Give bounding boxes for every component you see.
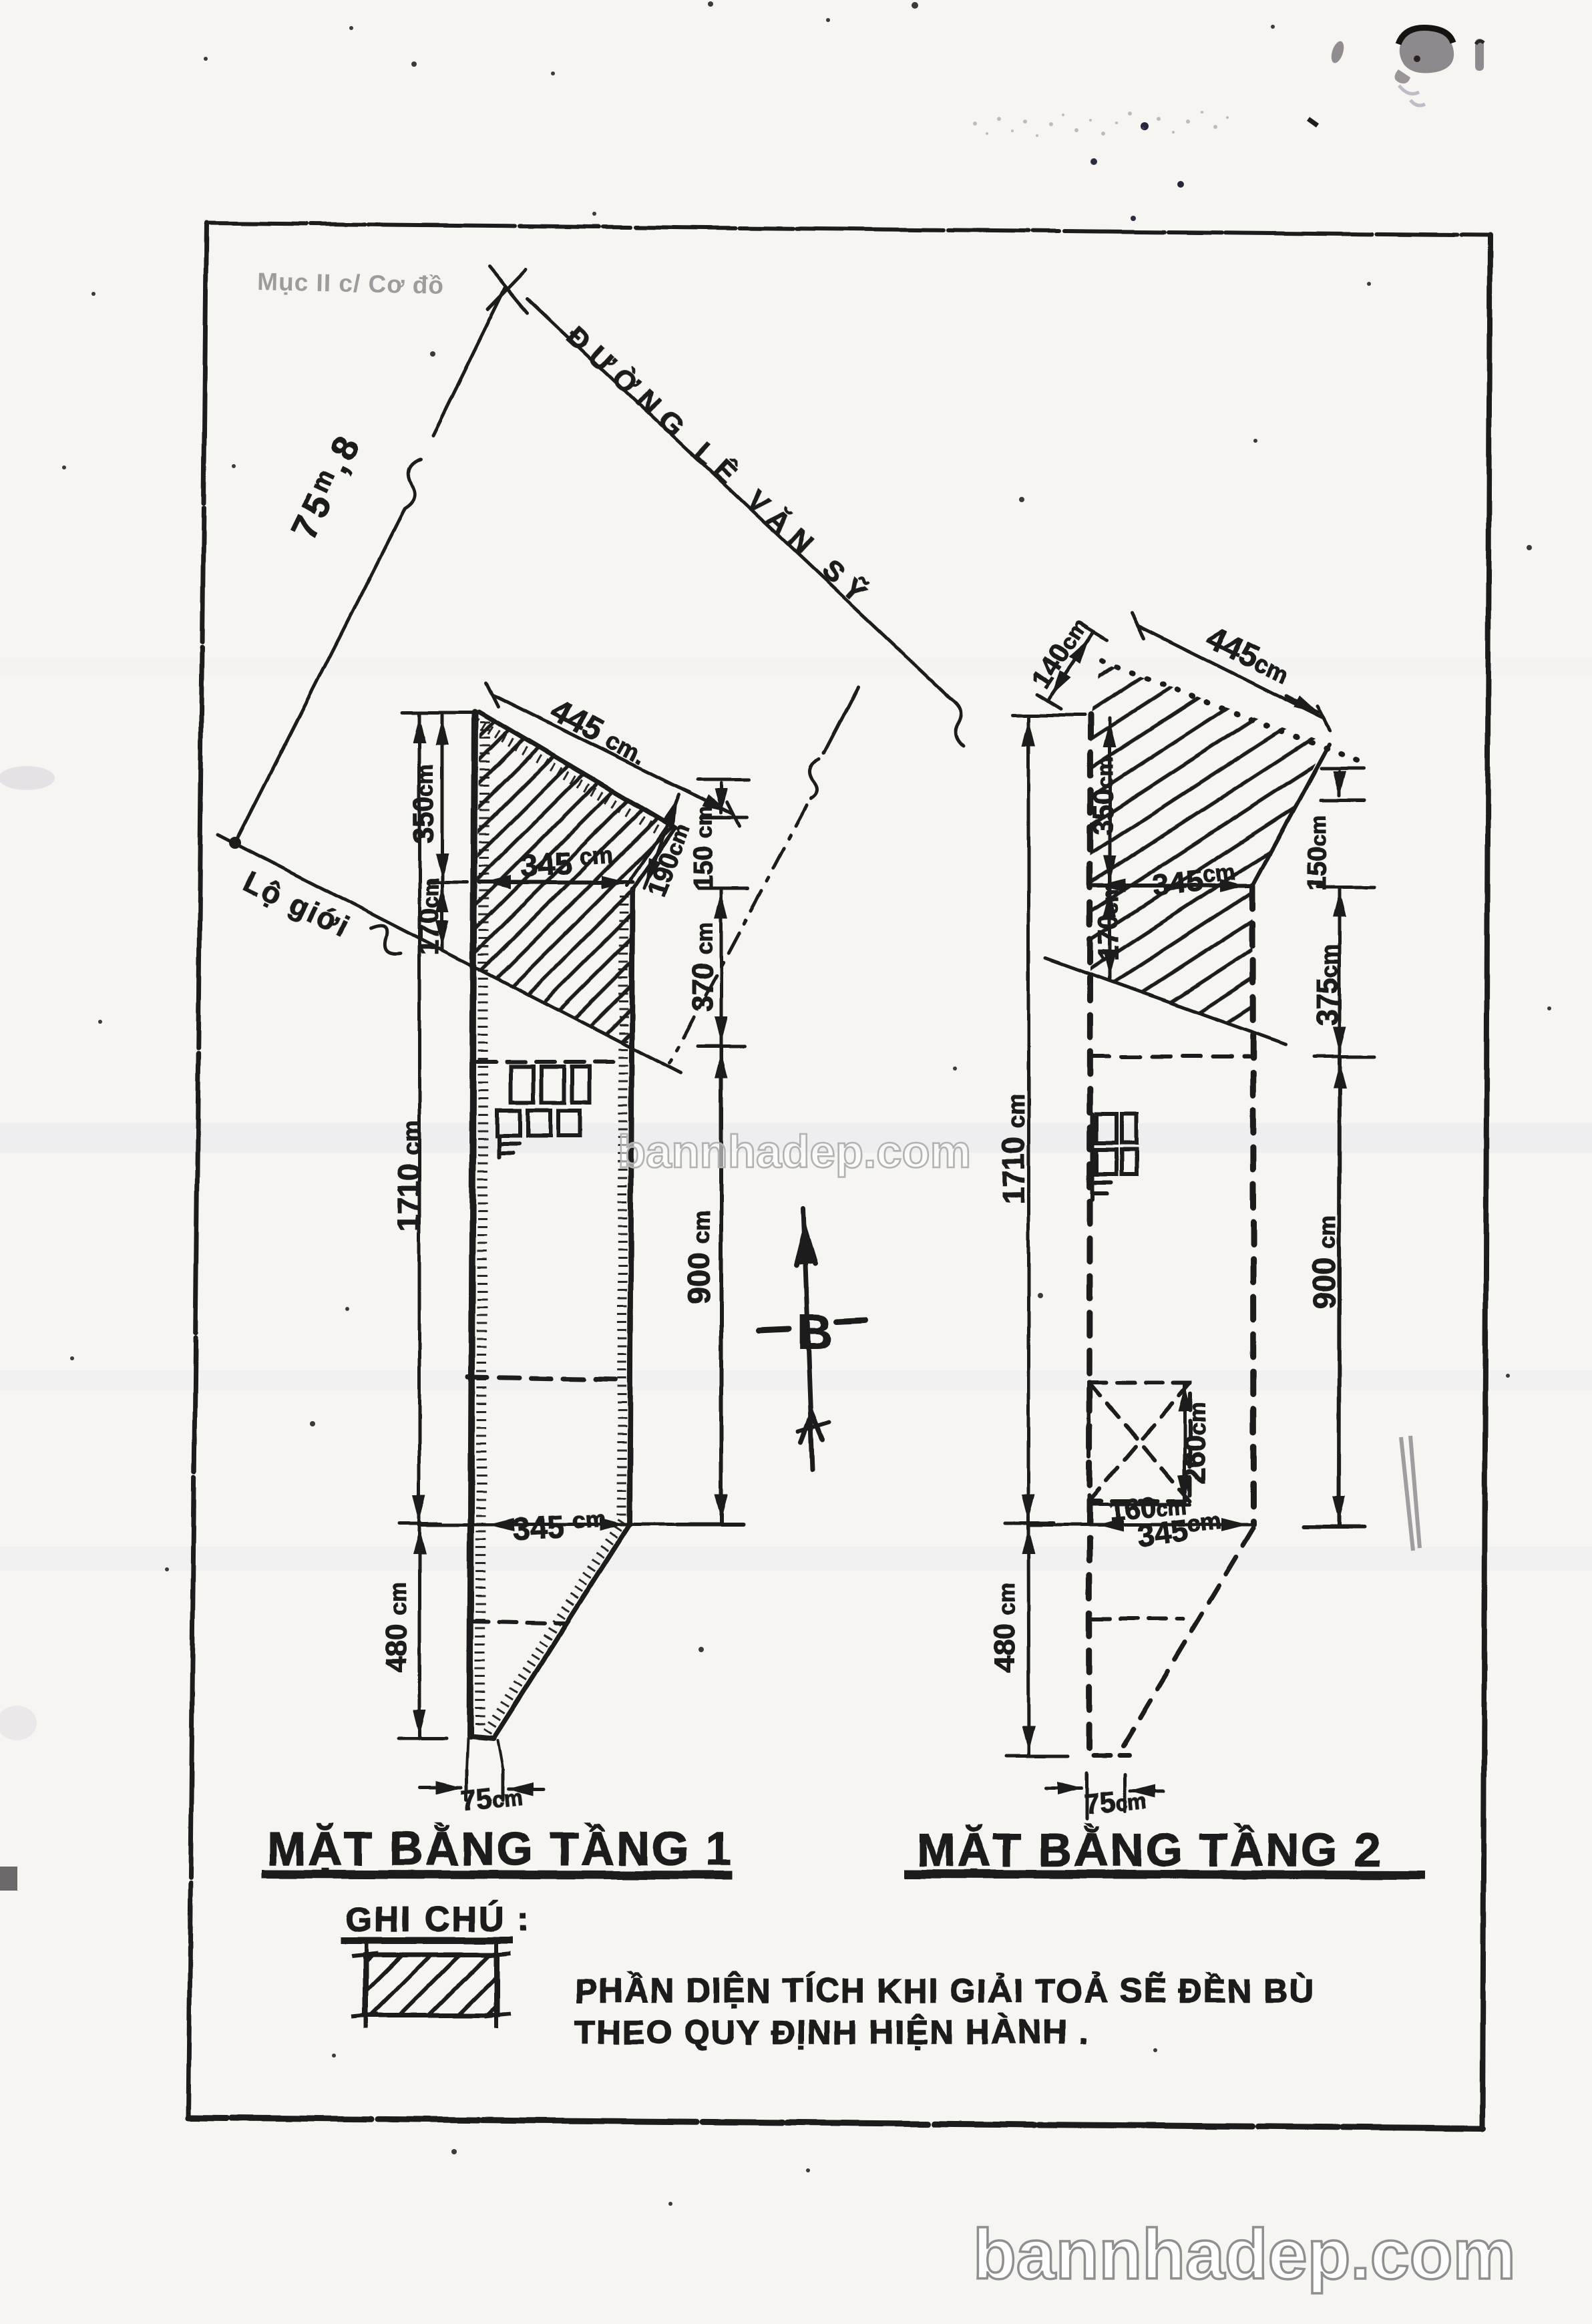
svg-text:GHI CHÚ :: GHI CHÚ : [345,1901,531,1939]
svg-text:170cm: 170cm [1092,882,1124,961]
svg-text:B: B [797,1304,832,1360]
svg-text:170cm: 170cm [413,877,444,956]
svg-text:Mục II c/ Cơ đồ: Mục II c/ Cơ đồ [257,268,445,299]
svg-text:bannhadep.com: bannhadep.com [618,1126,971,1177]
svg-text:350cm: 350cm [407,764,439,843]
svg-text:150cm: 150cm [1302,816,1332,892]
svg-text:bannhadep.com: bannhadep.com [973,2215,1516,2294]
svg-text:THEO QUY ĐỊNH HIỆN HÀNH .: THEO QUY ĐỊNH HIỆN HÀNH . [575,2013,1090,2051]
svg-text:350cm: 350cm [1087,757,1119,835]
svg-text:150 cm: 150 cm [688,807,718,890]
svg-text:MẶT BẰNG TẦNG 1: MẶT BẰNG TẦNG 1 [267,1822,733,1875]
svg-text:PHẦN DIỆN TÍCH KHI GIẢI TOẢ SẼ: PHẦN DIỆN TÍCH KHI GIẢI TOẢ SẼ ĐỀN BÙ [575,1972,1315,2009]
svg-text:MẶT BẰNG TẦNG 2: MẶT BẰNG TẦNG 2 [916,1824,1382,1876]
